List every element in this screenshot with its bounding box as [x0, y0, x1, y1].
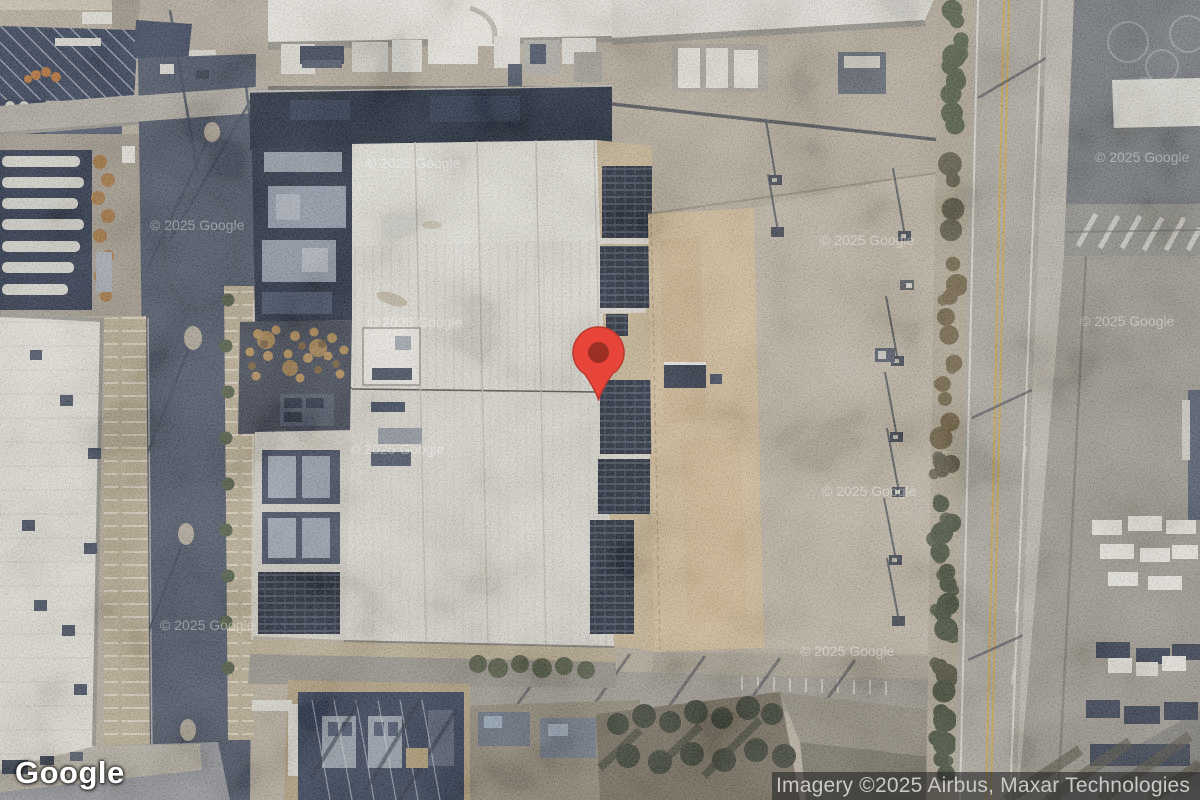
svg-text:© 2025 Google: © 2025 Google	[160, 617, 255, 633]
svg-text:© 2025 Google: © 2025 Google	[820, 232, 915, 248]
svg-text:© 2025 Google: © 2025 Google	[800, 643, 895, 659]
svg-text:© 2025 Google: © 2025 Google	[1095, 149, 1190, 165]
svg-text:© 2025 Google: © 2025 Google	[150, 217, 245, 233]
svg-text:© 2025 Google: © 2025 Google	[822, 483, 917, 499]
svg-text:© 2025 Google: © 2025 Google	[1080, 313, 1175, 329]
svg-text:© 2025 Google: © 2025 Google	[368, 314, 463, 330]
svg-text:© 2025 Google: © 2025 Google	[366, 155, 461, 171]
svg-text:© 2025 Google: © 2025 Google	[350, 441, 445, 457]
